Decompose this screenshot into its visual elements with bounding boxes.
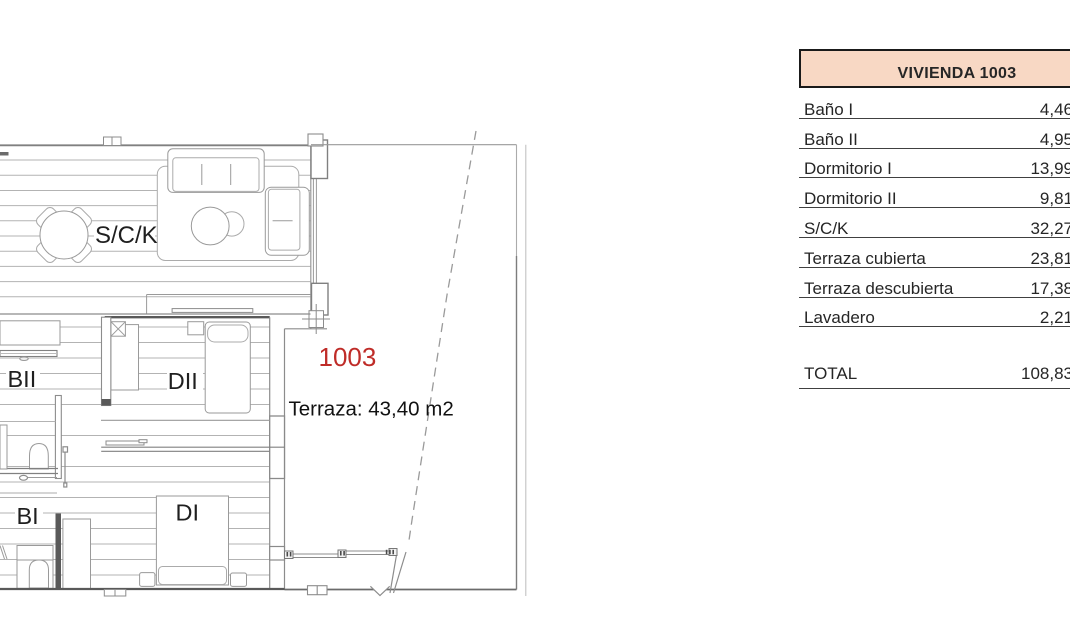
svg-text:BI: BI	[17, 503, 39, 529]
svg-text:DI: DI	[176, 500, 200, 526]
svg-text:DII: DII	[168, 368, 198, 394]
svg-text:BII: BII	[8, 366, 37, 392]
svg-text:S/C/K: S/C/K	[95, 222, 158, 249]
svg-text:Terraza: 43,40 m2: Terraza: 43,40 m2	[289, 397, 454, 420]
svg-text:1003: 1003	[319, 342, 377, 372]
